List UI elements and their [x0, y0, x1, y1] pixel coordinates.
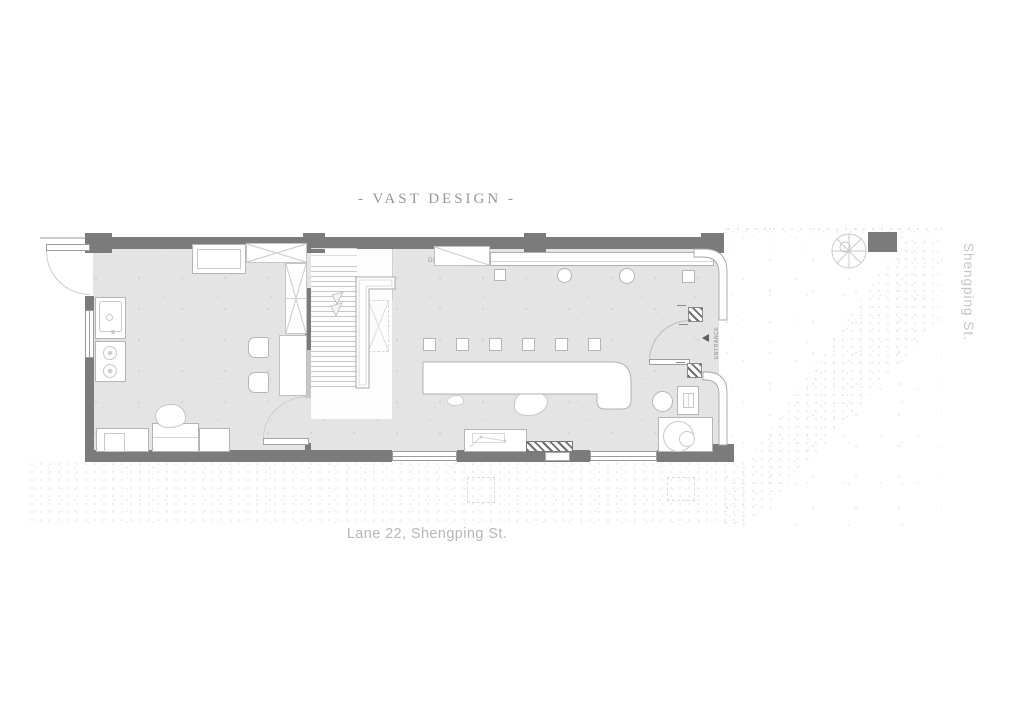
column-outdoor [868, 232, 897, 252]
base-cabinet [199, 428, 230, 452]
stool-square [555, 338, 568, 351]
stair-void-x [368, 300, 389, 352]
column [711, 444, 734, 462]
stool-square [682, 270, 695, 283]
post-tick [679, 324, 688, 325]
stool-round [557, 268, 572, 283]
floor-plan-sheet: - VAST DESIGN - Lane 22, Shengping St. S… [0, 0, 1024, 724]
zone-divider-line [392, 243, 393, 300]
counter-equipment [463, 370, 484, 390]
door-swing-arc [46, 251, 90, 295]
post-tick [676, 362, 685, 363]
stool-square [588, 338, 601, 351]
stool-round [619, 268, 635, 284]
column [524, 233, 546, 253]
plant-blob [155, 404, 186, 428]
vent-box [545, 452, 570, 461]
door-post [687, 363, 702, 378]
burner [103, 346, 117, 360]
base-cabinet-inner [104, 433, 125, 452]
kitchen-worktable-inner [197, 249, 241, 269]
window-bottom [590, 451, 657, 461]
window-bottom [392, 451, 457, 461]
side-table [279, 335, 307, 396]
counter-sink-small [487, 378, 496, 387]
stair-upper-flight [311, 248, 357, 262]
stair-treads [311, 266, 357, 388]
stool-square [456, 338, 469, 351]
stool-square [522, 338, 535, 351]
chair [248, 337, 269, 358]
base-cabinet [152, 423, 199, 452]
street-name-label: Shengping St. [961, 243, 976, 341]
sink-drain [106, 314, 113, 321]
wall-top [85, 237, 717, 249]
counter-item [511, 376, 522, 387]
blob-small [447, 395, 464, 406]
entrance-label: ENTRANCE [714, 327, 720, 359]
window-left [85, 310, 94, 358]
service-box-inner [472, 433, 505, 443]
burner [103, 364, 117, 378]
stool-square [489, 338, 502, 351]
tall-cabinet [285, 263, 307, 334]
faucet-dot [111, 330, 115, 334]
address-caption: Lane 22, Shengping St. [347, 526, 507, 542]
counter-sink [497, 375, 509, 387]
pavement-marking [467, 477, 495, 503]
column [701, 233, 724, 253]
machine-dial [679, 431, 695, 447]
drawing-title: - VAST DESIGN - [358, 191, 516, 208]
wall-left [85, 358, 94, 452]
floor-mat-hatch [526, 441, 573, 452]
shelf-diagonal [434, 246, 490, 266]
entrance-arrow-icon [702, 334, 709, 342]
round-table [652, 391, 673, 412]
chair [248, 372, 269, 393]
window-bench [490, 252, 714, 266]
door-leaf-interior [263, 438, 309, 445]
wall-left [85, 296, 94, 310]
sidewalk-texture [30, 462, 744, 523]
street-edge-texture [727, 227, 940, 236]
counter-item [578, 371, 598, 389]
stool-square [423, 338, 436, 351]
pavement-marking [667, 477, 695, 501]
cabinet-small-inner [683, 393, 694, 408]
boundary-line [40, 237, 85, 239]
post-tick [677, 305, 686, 306]
door-post [688, 307, 703, 322]
upper-cabinet [246, 243, 307, 263]
door-leaf-exterior [46, 244, 90, 251]
stool-square [494, 269, 506, 281]
